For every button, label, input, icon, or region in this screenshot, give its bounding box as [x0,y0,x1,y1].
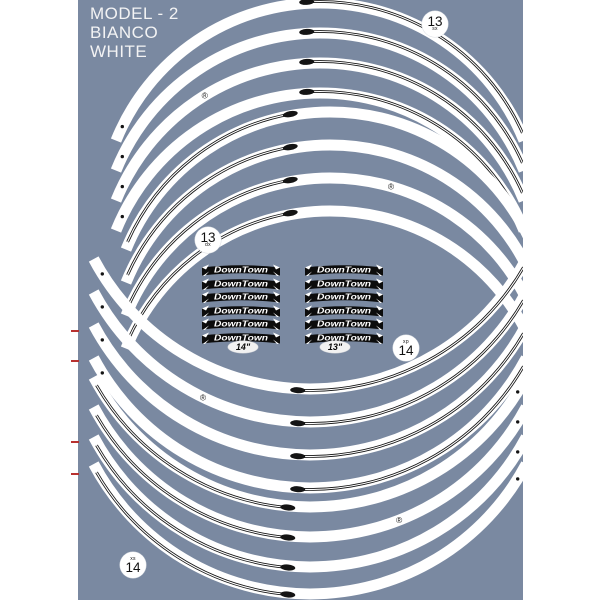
brand-sticker: DownTown [305,317,383,330]
decal-sheet-photo: ®®®® MODEL - 2 BIANCO WHITE 13 sx 13 dx … [0,0,600,600]
sticker-sheet-graphic: ®®®® [0,0,600,600]
stripe-end-dot [121,185,124,188]
stripe-end-dot [526,300,529,303]
brand-logo-text: DownTown [214,320,268,329]
brand-sticker: DownTown [305,277,383,290]
model-title: MODEL - 2 BIANCO WHITE [90,4,179,61]
brand-sticker-banner: DownTown [305,304,383,317]
brand-logo-text: DownTown [214,279,268,288]
size-oval-14: 14" [228,341,258,353]
stripe-end-dot [516,420,519,423]
badge-sub: sx [432,27,438,32]
brand-sticker: DownTown [202,317,280,330]
brand-sticker-banner: DownTown [202,304,280,317]
brand-sticker-banner: DownTown [305,290,383,303]
stripe-end-dot [101,272,104,275]
brand-sticker: DownTown [202,304,280,317]
badge-13-sx: 13 sx [422,11,448,37]
brand-sticker: DownTown [305,304,383,317]
registered-trademark-icon: ® [396,515,403,525]
stripe-end-dot [101,338,104,341]
brand-sticker-banner: DownTown [305,277,383,290]
registration-mark [71,441,79,443]
size-oval-13: 13" [320,341,350,353]
brand-logo-text: DownTown [214,266,268,275]
stripe-end-dot [516,390,519,393]
badge-13-dx: 13 dx [195,227,221,253]
brand-sticker-banner: DownTown [202,277,280,290]
brand-sticker: DownTown [202,290,280,303]
brand-logo-text: DownTown [317,293,371,302]
model-title-line3: WHITE [90,42,179,61]
brand-sticker: DownTown [305,290,383,303]
registration-mark [71,473,79,475]
registered-trademark-icon: ® [388,182,395,192]
brand-logo-text: DownTown [214,306,268,315]
stripe-end-dot [101,305,104,308]
stripe-end-dot [516,450,519,453]
brand-logo-text: DownTown [317,320,371,329]
stripe-end-dot [121,155,124,158]
brand-sticker-column-right: DownTownDownTownDownTownDownTownDownTown… [305,263,383,344]
stripe-end-dot [516,477,519,480]
brand-sticker-banner: DownTown [305,263,383,276]
badge-sub: dx [205,243,211,248]
brand-logo-text: DownTown [317,306,371,315]
stripe-end-dot [526,267,529,270]
registered-trademark-icon: ® [202,91,209,101]
brand-sticker-banner: DownTown [305,317,383,330]
registered-trademark-icon: ® [200,392,207,402]
badge-14-xs: 14 xs [120,552,146,578]
stripe-end-dot [121,125,124,128]
brand-sticker-banner: DownTown [202,263,280,276]
brand-sticker-column-left: DownTownDownTownDownTownDownTownDownTown… [202,263,280,344]
stripe-end-dot [526,234,529,237]
badge-number: 14 [125,562,140,573]
brand-logo-text: DownTown [214,293,268,302]
brand-sticker: DownTown [202,277,280,290]
registration-mark [71,330,79,332]
brand-logo-text: DownTown [317,279,371,288]
badge-14-xp: 14 xp [393,335,419,361]
brand-sticker: DownTown [305,263,383,276]
stripe-end-dot [121,215,124,218]
brand-sticker-banner: DownTown [202,290,280,303]
registration-mark [71,360,79,362]
brand-sticker-banner: DownTown [202,317,280,330]
model-title-line2: BIANCO [90,23,179,42]
brand-logo-text: DownTown [317,333,371,342]
stripe-end-dot [526,333,529,336]
model-title-line1: MODEL - 2 [90,4,179,23]
badge-number: 14 [398,345,413,356]
brand-sticker: DownTown [202,263,280,276]
brand-logo-text: DownTown [317,266,371,275]
stripe-end-dot [101,371,104,374]
